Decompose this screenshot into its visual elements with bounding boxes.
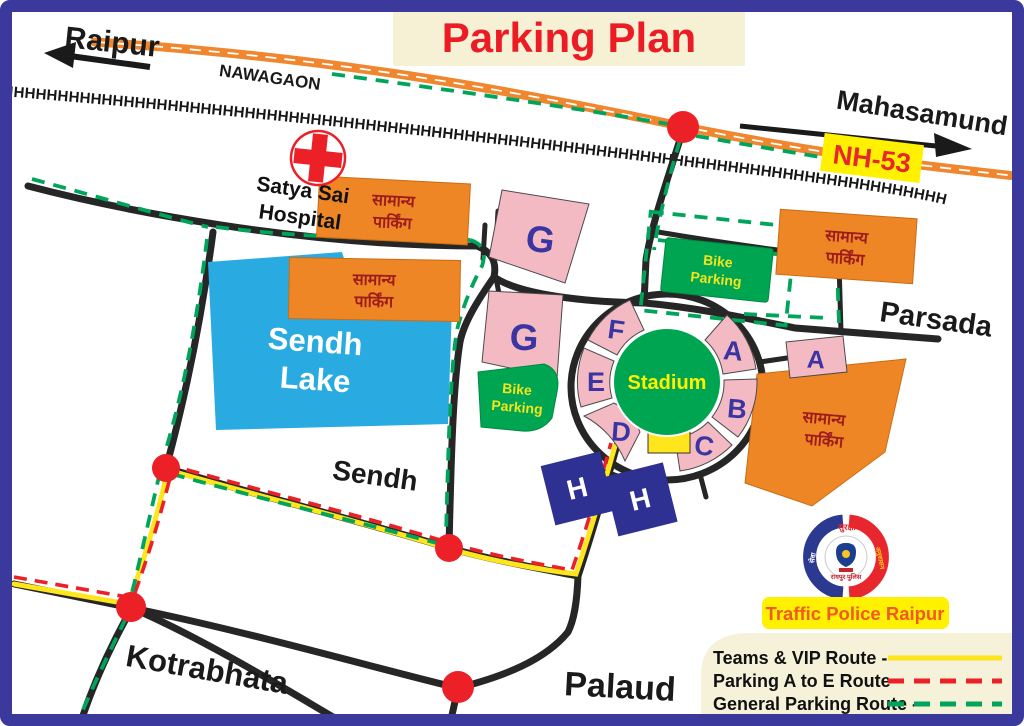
zone-b-label: B <box>726 393 748 425</box>
shield-base <box>839 568 853 572</box>
zone-c-label: C <box>692 430 715 462</box>
zone-g1-label: G <box>523 217 557 262</box>
general-parking-northwest-2: सामान्य पार्किंग <box>288 258 460 322</box>
logo-caption: रायपुर पुलिस <box>830 573 862 581</box>
arrow-head <box>44 42 76 68</box>
gen-route-nh53-west <box>332 74 668 124</box>
junction-dot-sendh <box>435 534 463 562</box>
shield-chakra <box>842 550 850 558</box>
legend-label-general: General Parking Route - <box>713 694 918 714</box>
bike-parking-box <box>478 364 558 431</box>
stadium-label: Stadium <box>628 372 707 394</box>
sendh-label: Sendh <box>331 454 420 497</box>
parking-box <box>288 258 460 322</box>
junction-dot-palaud <box>442 671 474 703</box>
stadium: Stadium <box>613 328 721 436</box>
mahasamund-label: Mahasamund <box>835 85 1010 142</box>
bike-parking-east: Bike Parking <box>660 238 773 303</box>
zone-a-label: A <box>722 335 744 367</box>
bike-parking-label1: Bike <box>702 252 733 271</box>
parking-label-line1: सामान्य <box>824 227 869 247</box>
parking-label-line1: सामान्य <box>352 272 397 290</box>
parking-label-line2: पार्किंग <box>372 212 414 233</box>
traffic-police-logo: सुरक्षा सेवा अनुशासन रायपुर पुलिस <box>802 513 890 601</box>
parking-box <box>776 209 917 283</box>
legend-label-vip: Teams & VIP Route - <box>713 648 887 668</box>
general-parking-southeast: सामान्य पार्किंग <box>745 359 906 506</box>
map-canvas: HHHHHHHHHHHHHHHHHHHHHHHHHHHHHHHHHHHHHHHH… <box>0 0 1024 726</box>
arrow-head <box>934 133 972 157</box>
parking-plan-map: HHHHHHHHHHHHHHHHHHHHHHHHHHHHHHHHHHHHHHHH… <box>0 0 1024 726</box>
traffic-police-label: Traffic Police Raipur <box>766 603 945 624</box>
gen-route-west-vert <box>163 239 207 459</box>
junction-dot-nh53 <box>667 111 699 143</box>
page-title: Parking Plan <box>442 14 696 61</box>
zone-h1: H <box>541 451 615 525</box>
junction-dot-kotrabhata <box>116 592 146 622</box>
legend: Teams & VIP Route - Parking A to E Route… <box>701 633 1016 716</box>
bike-parking-label1: Bike <box>502 380 533 399</box>
railway-line: HHHHHHHHHHHHHHHHHHHHHHHHHHHHHHHHHHHHHHHH… <box>2 83 958 208</box>
lake-label-line2: Lake <box>279 360 352 400</box>
spoke-south <box>701 478 706 497</box>
legend-label-ae: Parking A to E Route - <box>713 671 902 691</box>
road-gate-tick <box>483 225 485 259</box>
bike-parking-west: Bike Parking <box>478 364 558 431</box>
traffic-police-tag: Traffic Police Raipur <box>762 597 949 629</box>
palaud-label: Palaud <box>563 665 676 709</box>
route-teams-vip <box>14 446 615 604</box>
bike-parking-box <box>660 238 773 303</box>
parking-label-line1: सामान्य <box>371 192 416 211</box>
zone-g2-label: G <box>509 316 540 358</box>
spoke-a-box <box>760 358 787 362</box>
road-to-palaud <box>458 576 578 688</box>
parking-label-line2: पार्किंग <box>353 292 394 312</box>
route-parking-a-e <box>14 443 611 598</box>
title-block: Parking Plan <box>393 9 745 66</box>
gen-route-nw <box>32 179 208 227</box>
junction-dot-west <box>152 454 180 482</box>
logo-text-top: सुरक्षा <box>837 522 856 533</box>
zone-e-label: E <box>587 367 605 397</box>
general-parking-northeast: सामान्य पार्किंग <box>776 209 917 283</box>
zone-a-box-label: A <box>806 346 826 375</box>
lake-label-line1: Sendh <box>267 321 364 363</box>
